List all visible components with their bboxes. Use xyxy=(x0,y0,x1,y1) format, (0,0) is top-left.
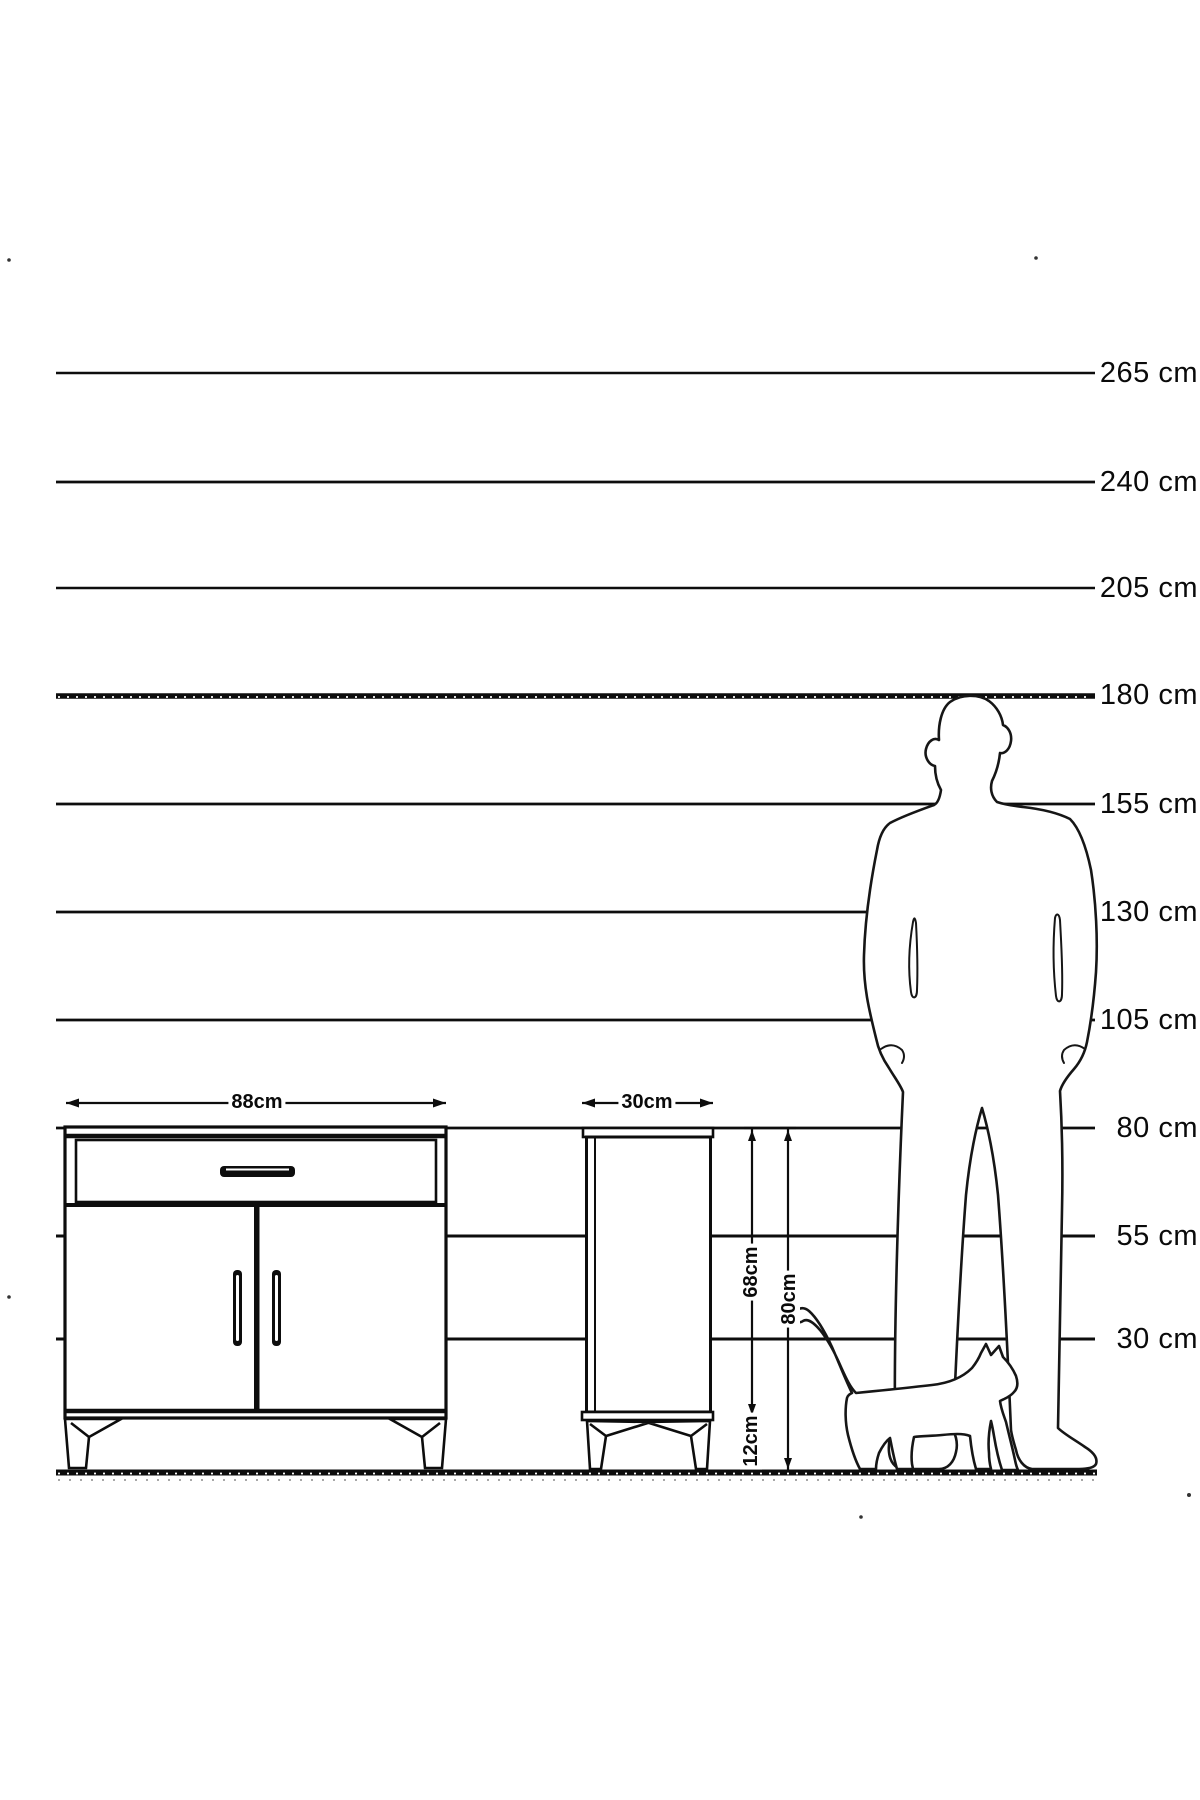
side-carcass xyxy=(587,1137,711,1412)
door-handle-left xyxy=(233,1270,242,1346)
height-label-180: 180 cm xyxy=(1096,678,1198,712)
dim-label-sideboard-width: 88cm xyxy=(228,1091,285,1113)
door-handle-right xyxy=(272,1270,281,1346)
man-arm-gap-right xyxy=(1054,914,1063,1001)
cabinet-side-view xyxy=(582,1128,713,1469)
height-label-80: 80 cm xyxy=(1096,1111,1198,1145)
diagram-canvas xyxy=(0,0,1200,1800)
dim-label-carcass-height: 68cm xyxy=(740,1243,762,1300)
dimension-diagram: 265 cm 240 cm 205 cm 180 cm 155 cm 130 c… xyxy=(0,0,1200,1800)
height-label-240: 240 cm xyxy=(1096,465,1198,499)
dim-label-overall-height: 80cm xyxy=(778,1270,800,1327)
height-label-205: 205 cm xyxy=(1096,571,1198,605)
dim-label-cabinet-depth: 30cm xyxy=(618,1091,675,1113)
height-label-55: 55 cm xyxy=(1096,1219,1198,1253)
height-label-105: 105 cm xyxy=(1096,1003,1198,1037)
height-label-155: 155 cm xyxy=(1096,787,1198,821)
dim-label-leg-height: 12cm xyxy=(740,1412,762,1469)
sideboard-legs xyxy=(65,1419,446,1468)
height-label-130: 130 cm xyxy=(1096,895,1198,929)
side-legs xyxy=(587,1421,710,1469)
drawer-handle xyxy=(220,1166,295,1177)
ground-line xyxy=(56,1473,1097,1481)
height-label-265: 265 cm xyxy=(1096,356,1198,390)
side-bottom-band xyxy=(582,1412,713,1420)
height-label-30: 30 cm xyxy=(1096,1322,1198,1356)
sideboard-front-view xyxy=(64,1127,447,1468)
door-gap xyxy=(254,1205,260,1411)
